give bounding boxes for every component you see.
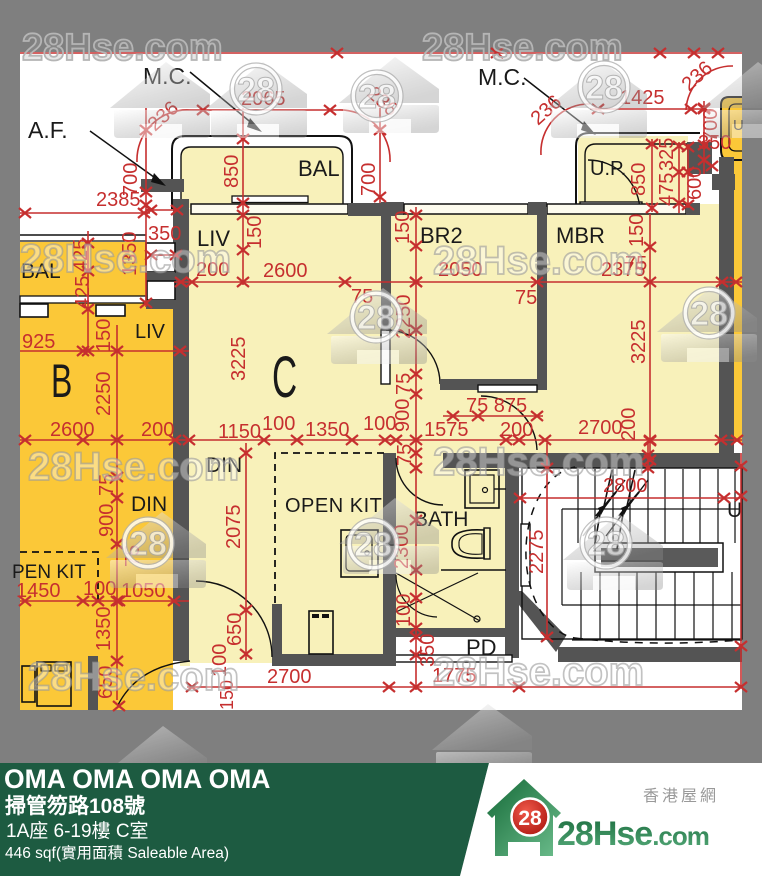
svg-text:2600: 2600 xyxy=(263,260,308,282)
svg-text:1575: 1575 xyxy=(424,419,469,441)
svg-text:C: C xyxy=(272,346,297,410)
svg-text:28Hse.com: 28Hse.com xyxy=(422,27,623,69)
svg-text:700: 700 xyxy=(120,163,142,196)
svg-text:2700: 2700 xyxy=(578,417,623,439)
svg-text:28Hse.com: 28Hse.com xyxy=(22,27,223,69)
svg-text:1350: 1350 xyxy=(305,419,350,441)
svg-text:28: 28 xyxy=(518,807,542,830)
svg-text:2075: 2075 xyxy=(223,505,245,550)
svg-text:850: 850 xyxy=(221,155,243,188)
svg-text:75 875: 75 875 xyxy=(466,395,527,417)
svg-text:925: 925 xyxy=(22,331,55,353)
svg-text:香港屋網: 香港屋網 xyxy=(643,787,719,805)
svg-text:600: 600 xyxy=(684,167,706,200)
svg-text:75: 75 xyxy=(394,444,416,466)
svg-text:150: 150 xyxy=(392,211,414,244)
svg-text:U.P.: U.P. xyxy=(590,158,626,180)
svg-text:B: B xyxy=(51,355,72,408)
svg-text:1350: 1350 xyxy=(93,607,115,652)
svg-text:100: 100 xyxy=(262,413,295,435)
svg-text:28Hse.com: 28Hse.com xyxy=(433,650,644,694)
svg-text:28: 28 xyxy=(587,525,625,563)
svg-text:28Hse.com: 28Hse.com xyxy=(28,655,239,699)
svg-text:75: 75 xyxy=(393,373,415,395)
svg-text:掃管笏路108號: 掃管笏路108號 xyxy=(5,794,145,818)
svg-text:325: 325 xyxy=(656,138,678,171)
svg-text:475: 475 xyxy=(656,173,678,206)
svg-text:900: 900 xyxy=(392,399,414,432)
svg-text:1150: 1150 xyxy=(218,421,261,443)
svg-text:1A座 6-19樓 C室: 1A座 6-19樓 C室 xyxy=(6,820,149,842)
svg-text:75: 75 xyxy=(515,287,537,309)
svg-text:2275: 2275 xyxy=(526,530,548,575)
svg-text:LIV: LIV xyxy=(135,321,166,343)
svg-text:28: 28 xyxy=(237,71,275,109)
svg-text:28: 28 xyxy=(129,525,167,563)
svg-text:200: 200 xyxy=(500,419,533,441)
svg-text:BAL: BAL xyxy=(298,156,340,181)
svg-text:700: 700 xyxy=(358,163,380,196)
svg-text:28: 28 xyxy=(358,78,396,116)
svg-text:28Hse.com: 28Hse.com xyxy=(20,237,231,281)
svg-text:1450: 1450 xyxy=(16,580,61,602)
svg-text:2600: 2600 xyxy=(50,419,95,441)
svg-text:28: 28 xyxy=(585,69,623,107)
svg-text:150: 150 xyxy=(244,216,266,249)
svg-text:200: 200 xyxy=(618,408,640,441)
svg-text:28: 28 xyxy=(690,295,728,333)
svg-text:28Hse.com: 28Hse.com xyxy=(433,239,644,283)
svg-text:OPEN KIT: OPEN KIT xyxy=(285,495,382,517)
svg-text:A.F.: A.F. xyxy=(28,117,68,143)
svg-text:200: 200 xyxy=(141,419,174,441)
svg-text:850: 850 xyxy=(628,163,650,196)
svg-text:2700: 2700 xyxy=(267,666,312,688)
svg-text:28Hse.com: 28Hse.com xyxy=(557,815,709,853)
svg-text:28Hse.com: 28Hse.com xyxy=(433,440,644,484)
svg-text:446 sqf(實用面積 Saleable Area): 446 sqf(實用面積 Saleable Area) xyxy=(5,843,229,862)
svg-text:OMA OMA OMA OMA: OMA OMA OMA OMA xyxy=(4,764,270,794)
svg-text:650: 650 xyxy=(224,613,246,646)
svg-text:100: 100 xyxy=(393,594,415,627)
svg-text:2250: 2250 xyxy=(93,372,115,417)
svg-text:900: 900 xyxy=(96,504,118,537)
svg-text:3225: 3225 xyxy=(628,320,650,365)
svg-text:28Hse.com: 28Hse.com xyxy=(28,445,239,489)
svg-text:28: 28 xyxy=(354,526,392,564)
svg-text:28: 28 xyxy=(357,299,395,337)
svg-text:3225: 3225 xyxy=(228,337,250,382)
svg-text:150: 150 xyxy=(93,319,115,352)
